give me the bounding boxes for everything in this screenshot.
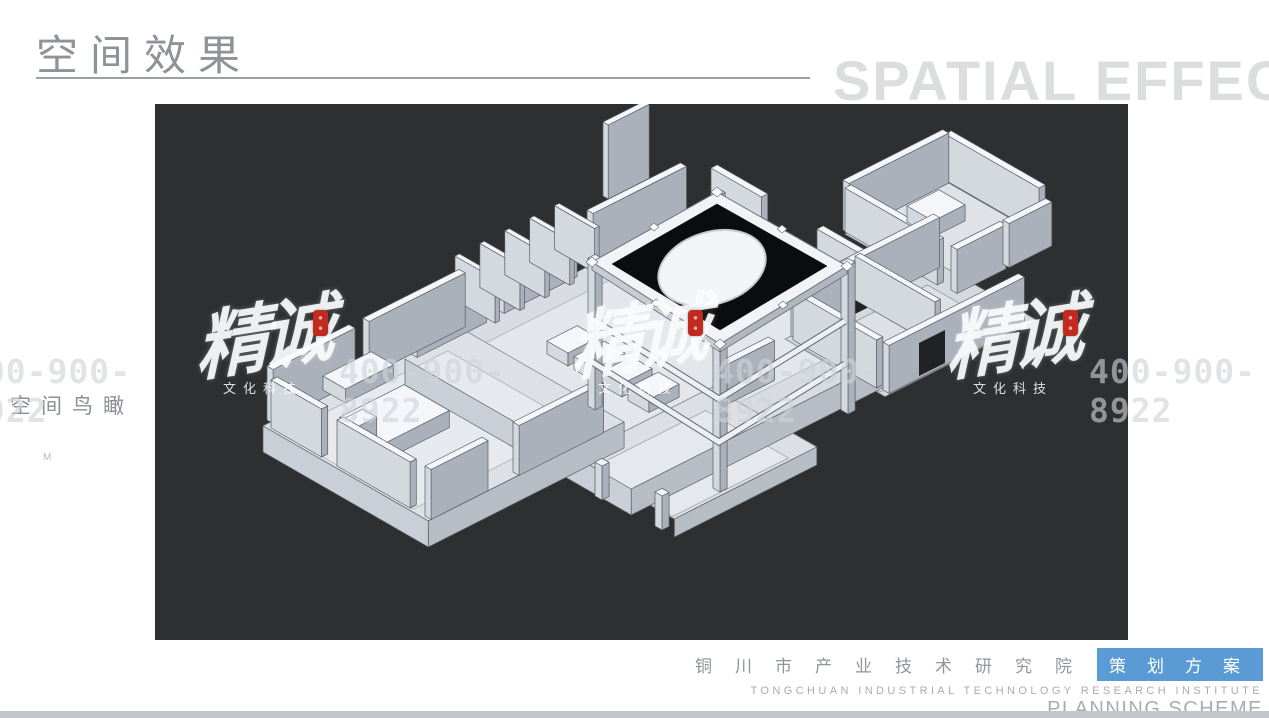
slide: 空间效果 SPATIAL EFFECT 空间鸟瞰 M 精诚 文化科技 400-9… xyxy=(0,0,1269,718)
birdseye-3d-render xyxy=(155,104,1128,640)
render-canvas xyxy=(155,104,1128,640)
title-underline xyxy=(36,77,810,79)
view-label: 空间鸟瞰 xyxy=(10,390,134,420)
view-note: M xyxy=(43,452,51,463)
page-title: 空间效果 xyxy=(36,22,252,83)
bottom-accent-bar xyxy=(0,711,1269,718)
footer-badge: 策划方案 xyxy=(1097,648,1263,681)
footer-org-cn: 铜川市产业技术研究院 xyxy=(695,652,1095,677)
footer-org-en: TONGCHUAN INDUSTRIAL TECHNOLOGY RESEARCH… xyxy=(695,685,1263,697)
footer: 铜川市产业技术研究院 策划方案 TONGCHUAN INDUSTRIAL TEC… xyxy=(695,648,1263,718)
